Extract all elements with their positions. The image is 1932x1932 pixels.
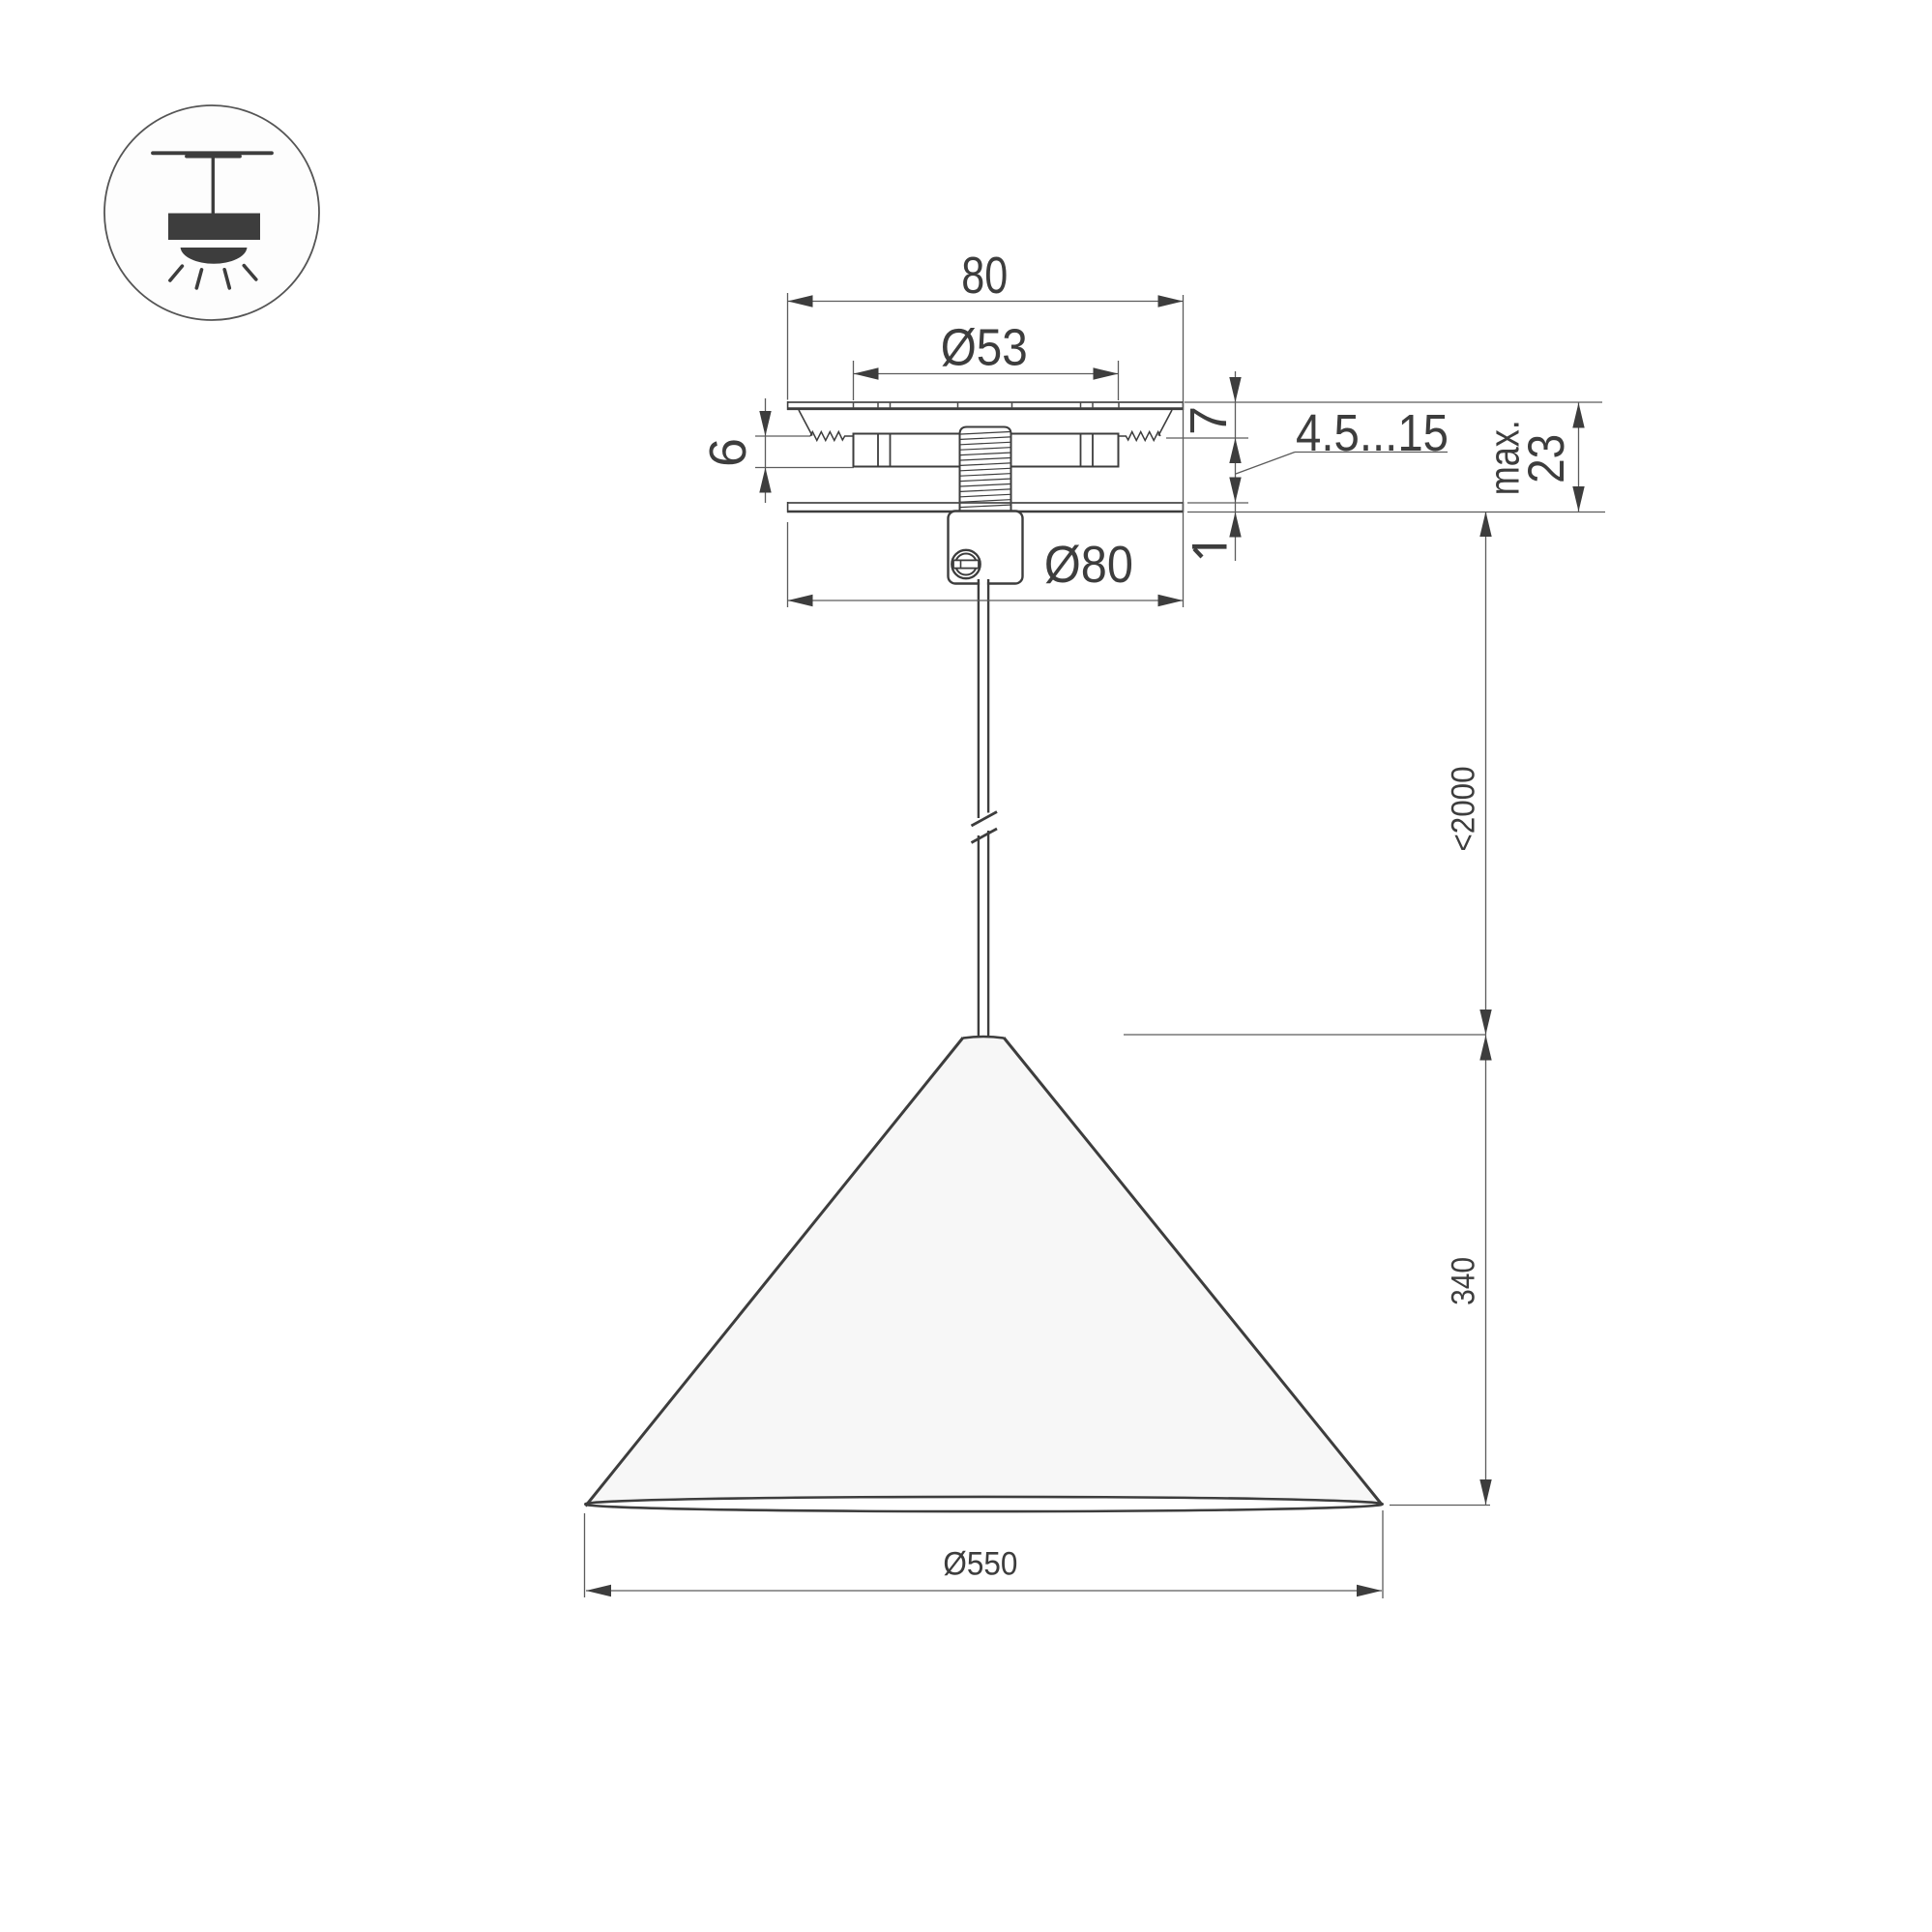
svg-text:6: 6 — [699, 438, 757, 467]
svg-text:Ø53: Ø53 — [941, 319, 1028, 377]
svg-text:Ø80: Ø80 — [1044, 536, 1133, 594]
svg-text:<2000: <2000 — [1446, 767, 1482, 852]
svg-text:340: 340 — [1446, 1257, 1482, 1305]
svg-text:7: 7 — [1180, 406, 1238, 435]
svg-text:Ø550: Ø550 — [943, 1546, 1017, 1583]
svg-text:23: 23 — [1518, 434, 1575, 483]
svg-text:80: 80 — [961, 247, 1008, 305]
svg-text:4.5...15: 4.5...15 — [1296, 404, 1449, 462]
